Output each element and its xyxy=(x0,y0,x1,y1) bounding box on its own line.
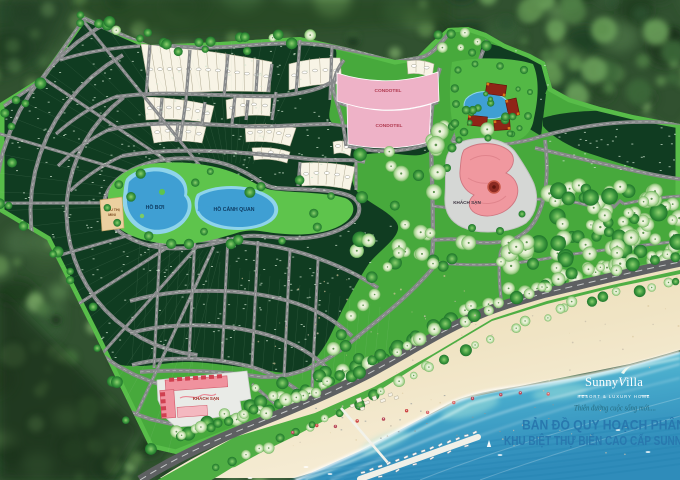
svg-text:MINI: MINI xyxy=(108,213,116,217)
svg-text:Thiên đường cuộc sống mới....: Thiên đường cuộc sống mới.... xyxy=(574,403,656,413)
svg-text:SunnyVilla: SunnyVilla xyxy=(585,375,643,389)
svg-text:CONDOTEL: CONDOTEL xyxy=(376,123,403,129)
svg-text:CONDOTEL: CONDOTEL xyxy=(375,88,402,94)
svg-text:HỒ CẢNH QUAN: HỒ CẢNH QUAN xyxy=(214,206,255,213)
svg-text:HỒ BƠI: HỒ BƠI xyxy=(146,204,165,211)
svg-text:KHÁCH SẠN: KHÁCH SẠN xyxy=(453,199,481,205)
svg-text:KHU BIỆT THỰ BIỂN CAO CẤP SUNN: KHU BIỆT THỰ BIỂN CAO CẤP SUNN xyxy=(504,433,680,448)
svg-text:BẢN ĐỒ QUY HOẠCH PHÂN: BẢN ĐỒ QUY HOẠCH PHÂN xyxy=(522,418,680,433)
svg-text:KHÁCH SẠN: KHÁCH SẠN xyxy=(193,396,219,401)
svg-text:RESORT & LUXURY HOME: RESORT & LUXURY HOME xyxy=(578,394,651,399)
